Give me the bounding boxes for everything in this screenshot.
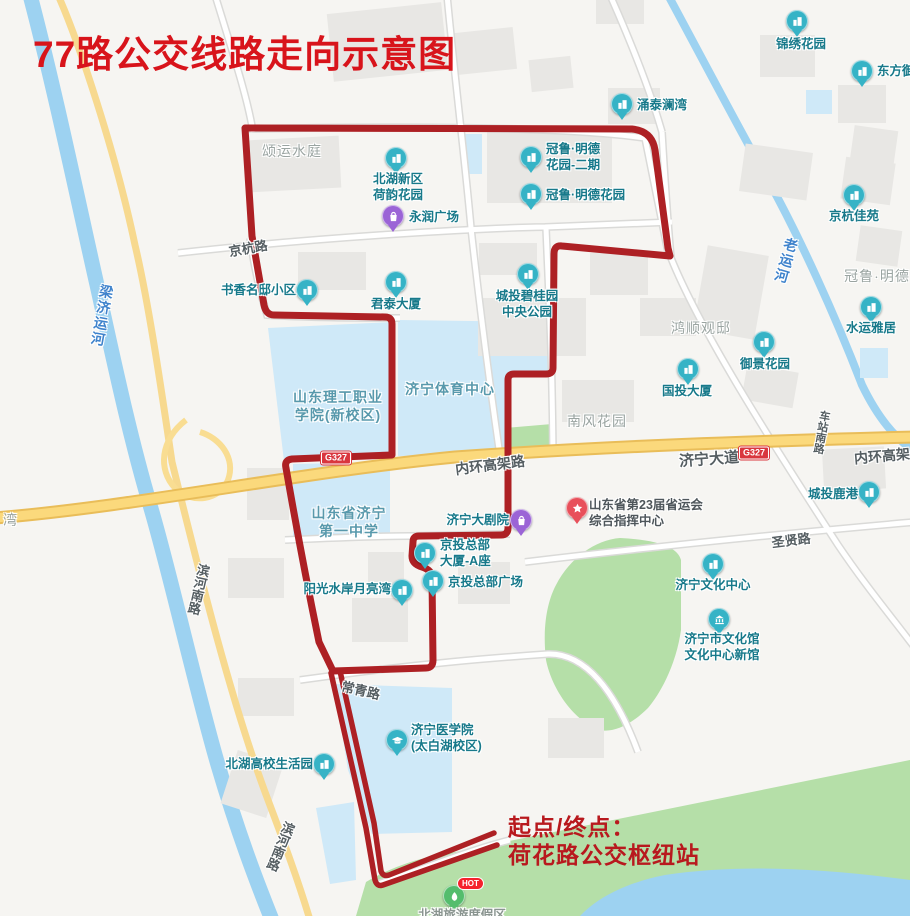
guanlu-mingde-2-label-line: 花园-二期 bbox=[546, 157, 600, 173]
jining-yizhong-label-line: 第一中学 bbox=[312, 522, 387, 540]
guanlu-mingde-label: 冠鲁·明德花园 bbox=[546, 187, 625, 203]
jinghang-jiayuan-label: 京杭佳苑 bbox=[829, 208, 879, 224]
dongfang-yu-icon[interactable] bbox=[851, 60, 873, 82]
shuiyun-yaju-label: 水运雅居 bbox=[846, 320, 896, 336]
yangguang-shuian-label-line: 阳光水岸月亮湾 bbox=[303, 581, 391, 597]
chengtou-biguiyuan-label-line: 城投碧桂园 bbox=[496, 288, 559, 304]
chengtou-biguiyuan-label: 城投碧桂园中央公园 bbox=[496, 288, 559, 320]
beihu-heyun-label-line: 荷韵花园 bbox=[373, 187, 423, 203]
wan-partial-label: 湾 bbox=[3, 510, 18, 530]
beihu-shenghuoyuan-label-line: 北湖高校生活园 bbox=[225, 756, 313, 772]
hongshun-guandi-label: 鸿顺观邸 bbox=[671, 318, 731, 338]
juntai-dasha-label-line: 君泰大厦 bbox=[371, 296, 421, 312]
yongrun-plaza-label-line: 永润广场 bbox=[409, 209, 459, 225]
wenhuaguan-xinguan-label: 济宁市文化馆文化中心新馆 bbox=[684, 631, 759, 663]
campus-pond bbox=[316, 802, 356, 884]
chengtou-lugang-label-line: 城投鹿港 bbox=[808, 486, 858, 502]
jining-wenhua-zhongxin-label: 济宁文化中心 bbox=[675, 577, 750, 593]
shengyunhui-zhihui-label-line: 综合指挥中心 bbox=[589, 513, 703, 529]
jining-yizhong-label: 山东省济宁第一中学 bbox=[312, 504, 387, 540]
beihu-heyun-label-line: 北湖新区 bbox=[373, 171, 423, 187]
shengyunhui-zhihui-label: 山东省第23届省运会综合指挥中心 bbox=[589, 497, 703, 529]
jinghang-jiayuan-icon[interactable] bbox=[843, 184, 865, 206]
wenhuaguan-xinguan-label-line: 济宁市文化馆 bbox=[684, 631, 759, 647]
beihu-heyun-icon[interactable] bbox=[385, 147, 407, 169]
tiyu-zhongxin-label: 济宁体育中心 bbox=[405, 380, 495, 398]
road-badge-g327-1: G327 bbox=[739, 447, 769, 460]
nanfeng-huayuan-label: 南风花园 bbox=[567, 411, 627, 431]
guanlu-mingde-2-label: 冠鲁·明德花园-二期 bbox=[546, 141, 600, 173]
beihu-shenghuoyuan-label: 北湖高校生活园 bbox=[225, 756, 313, 772]
jingtou-guangchang-icon[interactable] bbox=[422, 570, 444, 592]
chengtou-lugang-label: 城投鹿港 bbox=[808, 486, 858, 502]
chengtou-biguiyuan-label-line: 中央公园 bbox=[496, 304, 559, 320]
pond bbox=[806, 90, 832, 114]
yongtai-lanwan-label: 涌泰澜湾 bbox=[637, 97, 687, 113]
yongrun-plaza-icon[interactable] bbox=[382, 205, 404, 227]
jinxiu-huayuan-label-line: 锦绣花园 bbox=[776, 36, 826, 52]
songyun-shuiting-label: 颂运水庭 bbox=[262, 141, 322, 161]
jingtou-guangchang-label-line: 京投总部广场 bbox=[448, 574, 523, 590]
jingtou-guangchang-label: 京投总部广场 bbox=[448, 574, 523, 590]
jingtou-dasha-a-label-line: 京投总部 bbox=[440, 537, 491, 553]
jining-yixueyuan-label: 济宁医学院(太白湖校区) bbox=[411, 722, 482, 754]
yangguang-shuian-label: 阳光水岸月亮湾 bbox=[303, 581, 391, 597]
page-title: 77路公交线路走向示意图 bbox=[33, 24, 456, 78]
jining-yixueyuan-icon[interactable] bbox=[386, 729, 408, 751]
jining-wenhua-zhongxin-icon[interactable] bbox=[702, 553, 724, 575]
beihu-dujiaqu-label-line: 北湖旅游度假区 bbox=[418, 907, 506, 916]
yujing-huayuan-icon[interactable] bbox=[753, 331, 775, 353]
guanlu-mingde-2-icon[interactable] bbox=[520, 146, 542, 168]
dongfang-yu-label-line: 东方御 bbox=[877, 63, 910, 79]
yongtai-lanwan-icon[interactable] bbox=[611, 93, 633, 115]
tiyu-zhongxin-label-line: 济宁体育中心 bbox=[405, 380, 495, 398]
jingtou-dasha-a-icon[interactable] bbox=[414, 542, 436, 564]
jinghang-jiayuan-label-line: 京杭佳苑 bbox=[829, 208, 879, 224]
shengyunhui-zhihui-icon[interactable] bbox=[566, 497, 588, 519]
beihu-dujiaqu-label: 北湖旅游度假区 bbox=[418, 907, 506, 916]
guanlu-mingde-icon[interactable] bbox=[520, 183, 542, 205]
shuxiang-mingdi-icon[interactable] bbox=[296, 279, 318, 301]
yangguang-shuian-icon[interactable] bbox=[391, 579, 413, 601]
guanlu-mingde-r-label: 冠鲁·明德 bbox=[844, 266, 910, 286]
map-graphics bbox=[0, 0, 910, 916]
dongfang-yu-label: 东方御 bbox=[877, 63, 910, 79]
yongrun-plaza-label: 永润广场 bbox=[409, 209, 459, 225]
road-badge-g327-0: G327 bbox=[321, 452, 351, 465]
jining-dajuyuan-label-line: 济宁大剧院 bbox=[446, 512, 509, 528]
hot-badge: HOT bbox=[458, 878, 483, 889]
guotou-dasha-label: 国投大厦 bbox=[662, 383, 712, 399]
map-canvas[interactable]: 77路公交线路走向示意图 起点/终点： 荷花路公交枢纽站 锦绣花园东方御涌泰澜湾… bbox=[0, 0, 910, 916]
guotou-dasha-icon[interactable] bbox=[677, 358, 699, 380]
wenhuaguan-xinguan-icon[interactable] bbox=[708, 608, 730, 630]
guanlu-mingde-label-line: 冠鲁·明德花园 bbox=[546, 187, 625, 203]
chengtou-lugang-icon[interactable] bbox=[858, 481, 880, 503]
shuxiang-mingdi-label-line: 书香名邸小区 bbox=[221, 282, 296, 298]
beihu-heyun-label: 北湖新区荷韵花园 bbox=[373, 171, 423, 203]
shuiyun-yaju-icon[interactable] bbox=[860, 296, 882, 318]
jining-dajuyuan-label: 济宁大剧院 bbox=[446, 512, 509, 528]
yongtai-lanwan-label-line: 涌泰澜湾 bbox=[637, 97, 687, 113]
juntai-dasha-icon[interactable] bbox=[385, 271, 407, 293]
jingtou-dasha-a-label-line: 大厦-A座 bbox=[440, 553, 491, 569]
pond bbox=[860, 348, 888, 378]
jining-yizhong-label-line: 山东省济宁 bbox=[312, 504, 387, 522]
ligong-xueyuan-label: 山东理工职业学院(新校区) bbox=[293, 388, 383, 424]
jining-yixueyuan-label-line: 济宁医学院 bbox=[411, 722, 482, 738]
jingtou-dasha-a-label: 京投总部大厦-A座 bbox=[440, 537, 491, 569]
guanlu-mingde-2-label-line: 冠鲁·明德 bbox=[546, 141, 600, 157]
guotou-dasha-label-line: 国投大厦 bbox=[662, 383, 712, 399]
shengyunhui-zhihui-label-line: 山东省第23届省运会 bbox=[589, 497, 703, 513]
yujing-huayuan-label-line: 御景花园 bbox=[740, 356, 790, 372]
shuxiang-mingdi-label: 书香名邸小区 bbox=[221, 282, 296, 298]
shuiyun-yaju-label-line: 水运雅居 bbox=[846, 320, 896, 336]
ligong-xueyuan-label-line: 山东理工职业 bbox=[293, 388, 383, 406]
jining-dajuyuan-icon[interactable] bbox=[510, 509, 532, 531]
beihu-shenghuoyuan-icon[interactable] bbox=[313, 753, 335, 775]
terminus-note-line2: 荷花路公交枢纽站 bbox=[508, 836, 700, 870]
juntai-dasha-label: 君泰大厦 bbox=[371, 296, 421, 312]
jining-yixueyuan-label-line: (太白湖校区) bbox=[411, 738, 482, 754]
ligong-xueyuan-label-line: 学院(新校区) bbox=[293, 406, 383, 424]
jining-dadao-label: 济宁大道 bbox=[678, 446, 739, 471]
chengtou-biguiyuan-icon[interactable] bbox=[517, 263, 539, 285]
jinxiu-huayuan-icon[interactable] bbox=[786, 10, 808, 32]
jining-wenhua-zhongxin-label-line: 济宁文化中心 bbox=[675, 577, 750, 593]
jinxiu-huayuan-label: 锦绣花园 bbox=[776, 36, 826, 52]
wenhuaguan-xinguan-label-line: 文化中心新馆 bbox=[684, 647, 759, 663]
yujing-huayuan-label: 御景花园 bbox=[740, 356, 790, 372]
